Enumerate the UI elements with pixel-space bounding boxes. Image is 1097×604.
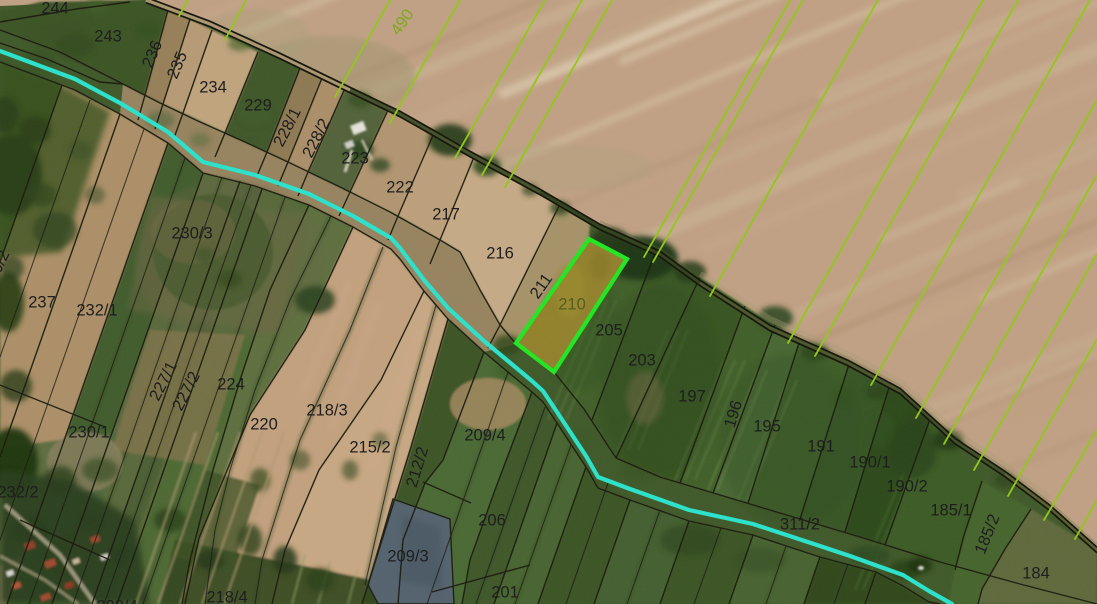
svg-text:223: 223 [341,150,369,168]
svg-text:217: 217 [432,206,460,224]
svg-text:234: 234 [199,79,227,97]
svg-text:209/3: 209/3 [387,548,428,566]
svg-text:222: 222 [386,179,414,197]
svg-text:232/2: 232/2 [0,484,39,502]
svg-text:185/1: 185/1 [930,502,971,520]
svg-text:205: 205 [595,322,623,340]
svg-text:232/1: 232/1 [76,302,117,320]
svg-text:230/3: 230/3 [171,225,212,243]
svg-text:195: 195 [753,418,781,436]
svg-text:184: 184 [1022,565,1050,583]
svg-text:220: 220 [250,416,278,434]
svg-text:229: 229 [244,97,272,115]
svg-text:206: 206 [478,512,506,530]
svg-text:210: 210 [558,296,586,314]
svg-text:216: 216 [486,245,514,263]
svg-text:311/2: 311/2 [780,516,820,534]
svg-text:237: 237 [28,294,56,312]
svg-text:197: 197 [678,388,706,406]
svg-text:218/4: 218/4 [206,589,247,604]
svg-text:244: 244 [41,0,69,18]
svg-text:224: 224 [217,376,245,394]
svg-text:218/3: 218/3 [306,402,347,420]
svg-text:243: 243 [94,28,122,46]
svg-text:201: 201 [491,584,519,602]
svg-text:230/1: 230/1 [68,424,109,442]
svg-text:191: 191 [807,438,835,456]
svg-text:190/1: 190/1 [849,454,890,472]
svg-text:208/4: 208/4 [96,598,137,604]
svg-text:215/2: 215/2 [349,439,390,457]
svg-text:203: 203 [628,352,656,370]
svg-text:209/4: 209/4 [464,427,505,445]
svg-text:190/2: 190/2 [886,478,927,496]
